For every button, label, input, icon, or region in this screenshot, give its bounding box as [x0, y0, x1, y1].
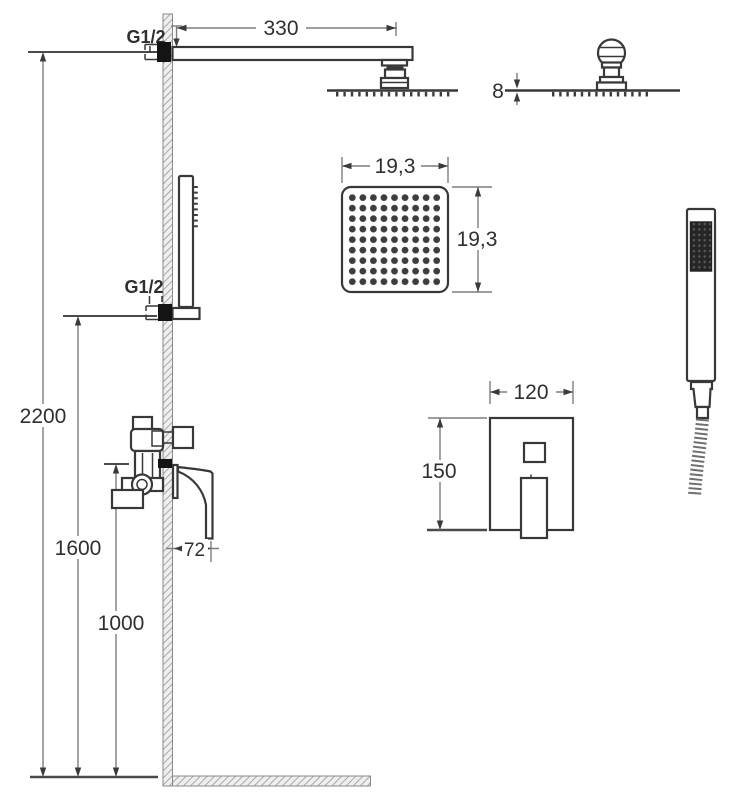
- wall-and-floor: [163, 14, 371, 786]
- hose-connector: [691, 382, 712, 407]
- spray-face: [691, 222, 712, 271]
- dim-8-label: 8: [492, 80, 504, 103]
- handshower-side-body: [179, 176, 193, 307]
- arrowhead: [75, 768, 81, 778]
- dim-72: 72: [166, 539, 219, 562]
- dim-8: 8: [492, 73, 520, 105]
- dim-330-label: 330: [263, 17, 298, 40]
- dim-120-label: 120: [513, 381, 548, 404]
- arrowhead: [75, 316, 81, 326]
- floor-section: [173, 776, 371, 786]
- dim-depth: 19,3: [452, 187, 503, 292]
- dim-150-label: 150: [421, 460, 456, 483]
- thread-handshower-label: G1/2: [124, 277, 163, 297]
- drawing-canvas: 2200 1600 1000 G1/2: [0, 0, 750, 800]
- wall-section: [163, 14, 173, 786]
- holder-bracket: [173, 308, 200, 319]
- escutcheon-edge: [173, 465, 178, 498]
- dim-width: 19,3: [342, 155, 448, 183]
- dim-19-3-width-label: 19,3: [375, 155, 416, 178]
- diverter-button: [524, 443, 545, 462]
- shower-arm-assembly: G1/2 330: [126, 17, 458, 94]
- dim-19-3-depth-label: 19,3: [457, 228, 498, 251]
- arrowhead: [173, 39, 179, 48]
- ball-joint: [597, 40, 626, 91]
- dim-150: 150: [415, 418, 487, 530]
- arrowhead: [113, 464, 119, 474]
- handshower-detail: [687, 209, 715, 496]
- diverter-knob-side: [173, 427, 193, 448]
- mixer-trim-front: 120 150: [415, 381, 573, 538]
- wall-connector: [158, 304, 172, 321]
- dim-1600-label: 1600: [55, 537, 102, 560]
- arrowhead: [387, 25, 397, 31]
- dim-72-label: 72: [184, 540, 205, 561]
- wall-connector: [157, 42, 171, 62]
- head-face-view: 19,3 19,3: [342, 155, 503, 292]
- lever-handle-side: [178, 467, 213, 539]
- lever-handle-front: [521, 478, 547, 538]
- shower-arm: [173, 47, 413, 60]
- dim-2200-label: 2200: [20, 405, 67, 428]
- nozzle-grid: [347, 192, 442, 287]
- handshower-on-wall: G1/2: [124, 176, 199, 321]
- arrowhead: [40, 52, 46, 62]
- arrowhead: [40, 768, 46, 778]
- head-connector: [381, 60, 408, 88]
- shower-hose: [695, 419, 703, 496]
- dim-120: 120: [490, 381, 573, 404]
- hose-nut: [697, 407, 708, 418]
- vertical-dimensions: 2200 1600 1000: [19, 52, 163, 777]
- dim-1000-label: 1000: [98, 612, 145, 635]
- arrowhead: [113, 768, 119, 778]
- head-side-view: 8: [492, 40, 680, 106]
- shower-diagram: 2200 1600 1000 G1/2: [0, 0, 750, 800]
